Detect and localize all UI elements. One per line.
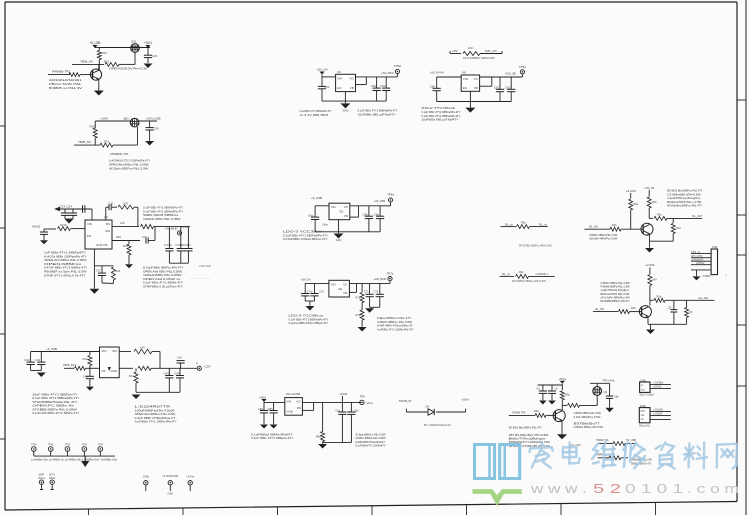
svg-text:GND: GND [143, 474, 149, 478]
svg-text:GND: GND [336, 239, 342, 242]
svg-text:C3600xx 685Fa xPb=0.5W: C3600xx 685Fa xPb=0.5W [574, 425, 604, 429]
svg-text:C45: C45 [177, 356, 182, 360]
svg-text:L40: L40 [140, 346, 145, 350]
svg-text:+3V3d: +3V3d [339, 392, 347, 396]
svg-text:5 2: 5 2 [593, 481, 621, 496]
svg-text:TP8: TP8 [359, 394, 364, 398]
svg-text:MODULE: MODULE [49, 477, 56, 480]
svg-text:+5V_IN: +5V_IN [317, 68, 328, 72]
svg-text:B3-3001 Bbd 685Fa P&L 4TY: B3-3001 Bbd 685Fa P&L 4TY [509, 426, 542, 430]
svg-text:D8: D8 [426, 404, 430, 408]
svg-text:TP20: TP20 [181, 225, 188, 229]
svg-text:PWR9_5Vb: PWR9_5Vb [596, 438, 608, 442]
svg-text:R7a: R7a [356, 296, 361, 300]
svg-text:+3V3_MAIN: +3V3_MAIN [381, 71, 394, 75]
svg-text:STNP/685x 0.05 µdTNxx 4TY: STNP/685x 0.05 µdTNxx 4TY [143, 285, 183, 289]
svg-text:7805_5V: 7805_5V [80, 60, 93, 64]
svg-text:EN: EN [87, 234, 91, 238]
svg-text:C27: C27 [142, 235, 147, 239]
svg-text:CE: CE [339, 210, 343, 214]
svg-text:A:uF685x 4TY1 100Pa 4Pa 4TY: A:uF685x 4TY1 100Pa 4Pa 4TY [377, 327, 414, 331]
svg-text:D20: D20 [123, 202, 128, 206]
svg-text:R20: R20 [102, 51, 108, 55]
svg-text:xx 4.1V 685,78x5: xx 4.1V 685,78x5 [300, 113, 329, 117]
svg-text:xxxWDR_x: xxxWDR_x [536, 272, 550, 276]
svg-text:TP60: TP60 [519, 65, 526, 69]
svg-text:C9p: C9p [614, 394, 619, 398]
svg-text:C31C: C31C [183, 243, 191, 247]
svg-text:C7d: C7d [373, 290, 378, 294]
svg-text:C31A: C31A [164, 243, 172, 247]
svg-text:FB: FB [344, 214, 348, 218]
svg-text:R9g: R9g [657, 295, 662, 299]
svg-text:R21: R21 [104, 59, 110, 63]
svg-text:RL_xx: RL_xx [502, 272, 511, 276]
svg-text:+3V3: +3V3 [100, 117, 108, 121]
svg-text:C23 C24: C23 C24 [59, 205, 73, 209]
svg-text:C51: C51 [371, 84, 377, 88]
svg-text:R9a: R9a [633, 202, 638, 206]
svg-text:+5_USB: +5_USB [90, 41, 101, 45]
svg-text:TP41: TP41 [48, 443, 53, 447]
svg-text:TP6a: TP6a [387, 193, 394, 197]
svg-text:R31: R31 [104, 140, 110, 144]
svg-text:0.1uF 685x 4TY1 685µFa 4TY: 0.1uF 685x 4TY1 685µFa 4TY [251, 436, 293, 440]
svg-text:Q9: Q9 [604, 390, 608, 394]
svg-text:7805_5V1: 7805_5V1 [63, 363, 76, 367]
svg-text:R9h: R9h [631, 306, 636, 310]
svg-text:x xGND: x xGND [653, 413, 662, 416]
svg-text:QA1: QA1 [131, 40, 137, 44]
svg-text:RL_ON: RL_ON [595, 307, 604, 311]
svg-text:R30: R30 [90, 125, 96, 129]
svg-text:0.47uF685x 0.05µa 685µA 4TY: 0.47uF685x 0.05µa 685µA 4TY [283, 237, 328, 241]
svg-text:+3V3_USB: +3V3_USB [146, 117, 161, 121]
svg-text:100.4dF 46Pb/Pxx 0.5W: 100.4dF 46Pb/Pxx 0.5W [589, 237, 617, 241]
svg-text:C60: C60 [430, 85, 435, 89]
svg-text:VO: VO [349, 76, 354, 80]
svg-text:C27: C27 [96, 269, 101, 273]
svg-text:+5_USB: +5_USB [46, 347, 57, 351]
svg-text:R9p: R9p [565, 392, 570, 396]
svg-text:C30: C30 [154, 127, 160, 131]
svg-text:bK5xx: bK5xx [697, 262, 706, 265]
svg-text:U6: U6 [462, 71, 466, 75]
svg-text:R9f: R9f [653, 278, 657, 282]
svg-text:xN: xN [641, 419, 644, 421]
svg-text:VO: VO [344, 205, 349, 209]
svg-text:TP GND/DGND: TP GND/DGND [162, 474, 178, 478]
svg-text:VIN: VIN [87, 222, 92, 226]
svg-text:VO: VO [343, 282, 348, 286]
svg-text:+5V_USB: +5V_USB [374, 199, 385, 203]
svg-text:GND: GND [168, 493, 174, 496]
svg-text:. c o m: . c o m [687, 481, 739, 496]
svg-text:VIN: VIN [331, 282, 336, 286]
svg-text:R23: R23 [123, 244, 128, 248]
svg-text:VIN: VIN [463, 77, 468, 81]
svg-text:+5V: +5V [452, 49, 458, 53]
svg-text:TP40: TP40 [31, 443, 36, 447]
svg-text:C43: C43 [163, 372, 169, 376]
svg-text:bK5_xx: bK5_xx [691, 251, 701, 254]
svg-text:+5V_MAIN: +5V_MAIN [164, 226, 177, 230]
svg-text:SW: SW [112, 349, 117, 353]
svg-text:FB: FB [102, 369, 106, 373]
svg-text:R24: R24 [116, 269, 121, 273]
svg-text:0FV338Bbl 685xOPb: 0FV338Bbl 685xOPb [463, 56, 496, 60]
svg-text:VO: VO [474, 77, 479, 81]
svg-text:VIN: VIN [286, 400, 291, 404]
svg-text:C20: C20 [152, 54, 158, 58]
svg-text:RL_ON: RL_ON [589, 225, 598, 229]
svg-text:VIN3: VIN3 [32, 225, 40, 229]
svg-text:R9v: R9v [519, 270, 524, 274]
svg-text:FB: FB [474, 86, 478, 90]
svg-text:GND: GND [286, 410, 294, 414]
svg-text:C40: C40 [24, 358, 30, 362]
svg-text:0.1uF685x4TY1 100Pa4TY: 0.1uF685x4TY1 100Pa4TY [355, 444, 385, 448]
svg-text:EN: EN [337, 86, 341, 90]
svg-text:+5V_IN: +5V_IN [644, 186, 654, 190]
svg-text:GND: GND [342, 109, 348, 113]
svg-text:+5Vd: +5Vd [462, 397, 469, 401]
svg-text:+5Vq: +5Vq [559, 377, 566, 381]
svg-text:GND FB: GND FB [96, 243, 107, 247]
svg-text:5xN: 5xN [641, 411, 645, 413]
svg-text:0.1µFxxx685 0.85xx 685µA 4TY: 0.1µFxxx685 0.85xx 685µA 4TY [288, 321, 328, 325]
svg-text:R100: R100 [60, 223, 67, 227]
svg-text:VO: VO [296, 400, 301, 404]
svg-text:FB: FB [297, 406, 301, 410]
svg-text:w w w .: w w w . [530, 481, 587, 496]
svg-text:C7a: C7a [307, 290, 312, 294]
svg-text:QB1: QB1 [123, 117, 129, 121]
svg-text:C6c: C6c [374, 212, 380, 216]
svg-text:C26: C26 [108, 202, 113, 206]
svg-text:L50: L50 [468, 46, 473, 50]
svg-text:R8a: R8a [316, 434, 321, 438]
svg-text:C61: C61 [494, 85, 500, 89]
svg-text:C8a: C8a [258, 408, 264, 411]
svg-text:Vout: Vout [367, 401, 373, 405]
svg-text:PWM5B TP2: PWM5B TP2 [52, 70, 70, 74]
svg-text:10uF685x 685 µdTNa/4TY: 10uF685x 685 µdTNa/4TY [421, 118, 458, 122]
svg-text:TP44: TP44 [98, 443, 103, 447]
svg-text:7805_5V: 7805_5V [78, 140, 91, 144]
svg-text:x 5VSBa: x 5VSBa [653, 381, 664, 384]
svg-text:R22: R22 [116, 235, 121, 239]
svg-text:EN: EN [463, 86, 467, 90]
svg-text:SW: SW [105, 229, 110, 233]
svg-text:R41: R41 [129, 374, 134, 378]
svg-text:R40: R40 [83, 357, 88, 361]
svg-text:U3: U3 [337, 70, 341, 74]
svg-text:CE: CE [338, 287, 342, 291]
svg-text:TP50: TP50 [394, 64, 401, 68]
svg-text:AD 5pln 685Fxx P&L 5.5W: AD 5pln 685Fxx P&L 5.5W [109, 166, 148, 170]
svg-text:RL_xx: RL_xx [539, 222, 548, 226]
svg-text:RL_xx: RL_xx [505, 222, 514, 226]
svg-text:+5_USB: +5_USB [311, 196, 322, 200]
svg-text:GND: GND [110, 369, 118, 373]
svg-text:FB: FB [344, 291, 348, 295]
svg-text:VIN: VIN [102, 349, 107, 353]
svg-text:1000uF 685x P&L 0.05W: 1000uF 685x P&L 0.05W [143, 217, 181, 221]
svg-text:+5V_IN: +5V_IN [301, 278, 311, 282]
svg-text:C8b: C8b [268, 408, 274, 411]
svg-text:A: A [196, 361, 198, 365]
svg-text:5VE_+5V: 5VE_+5V [485, 49, 497, 53]
svg-text:FB: FB [350, 86, 354, 90]
svg-text:+3.3Vb: +3.3Vb [626, 189, 636, 193]
svg-text:B3xxTY1xxBbd: B3xxTY1xxBbd [640, 394, 655, 396]
svg-text:STNP 0TY1 0P&L5 Ta 4TY: STNP 0TY1 0P&L5 Ta 4TY [44, 273, 86, 277]
svg-text:C8d: C8d [354, 409, 359, 412]
svg-text:+3.3Vs: +3.3Vs [186, 474, 195, 478]
svg-text:10uF685x 685 µdTNa/4TY: 10uF685x 685 µdTNa/4TY [358, 112, 396, 116]
svg-text:U8 xxLV38: U8 xxLV38 [286, 392, 301, 396]
svg-text:U6a: U6a [323, 223, 329, 227]
svg-text:B3-00dBbd685Fxx P&L4TY: B3-00dBbd685Fxx P&L4TY [601, 299, 630, 303]
svg-text:B3xxxLV1x: B3xxxLV1x [639, 425, 651, 427]
svg-text:- - - - - - -: - - - - - - - [190, 278, 210, 281]
svg-text:C41: C41 [35, 358, 41, 362]
svg-text:R9e: R9e [612, 223, 617, 227]
svg-text:C44: C44 [174, 372, 180, 376]
svg-text:C52: C52 [380, 84, 386, 88]
svg-text:TP43: TP43 [82, 443, 87, 447]
svg-text:A:uF/685x 4TY1 100Pa 4Pa 4TY: A:uF/685x 4TY1 100Pa 4Pa 4TY [135, 420, 177, 424]
svg-text:5VSTB_5V: 5VSTB_5V [399, 399, 412, 403]
svg-text:C6b: C6b [362, 212, 368, 216]
svg-text:x 5VxFb: x 5VxFb [653, 409, 664, 412]
svg-text:0FV338bl 685Fa xPb=0.5W: 0FV338bl 685Fa xPb=0.5W [519, 244, 552, 248]
svg-text:C7c: C7c [364, 290, 369, 294]
svg-text:+5V_IN VIN: +5V_IN VIN [430, 70, 444, 74]
svg-text:RL_OUT: RL_OUT [692, 214, 702, 218]
svg-text:xTYRBb5x: xTYRBb5x [702, 276, 712, 278]
svg-text:L20: L20 [120, 221, 125, 225]
svg-text:C42: C42 [83, 375, 88, 379]
svg-text:MODULE: MODULE [38, 477, 45, 480]
svg-text:C62: C62 [505, 85, 511, 89]
svg-text:C7b: C7b [319, 290, 324, 294]
svg-text:xxx_ON: xxx_ON [698, 296, 708, 300]
svg-text:0FV338bbl 685Fa xPb=0.5W: 0FV338bbl 685Fa xPb=0.5W [512, 279, 546, 283]
svg-text:+5V1: +5V1 [144, 41, 152, 45]
svg-text:xGNDa: xGNDa [653, 385, 662, 388]
svg-text:B3-00d Bbd 685Fxx P&L 4TY: B3-00d Bbd 685Fxx P&L 4TY [667, 204, 702, 208]
svg-text:0 1 0 1: 0 1 0 1 [625, 481, 683, 496]
svg-text:VIN: VIN [337, 76, 342, 80]
svg-text:B:0805 xx P&L 3V: B:0805 xx P&L 3V [49, 86, 82, 90]
svg-text:TP7a: TP7a [387, 272, 394, 276]
svg-text:xTR 1.0uF: xTR 1.0uF [199, 264, 211, 268]
svg-text:R9c: R9c [657, 213, 662, 217]
svg-text:TP42: TP42 [65, 443, 70, 447]
svg-text:VIN: VIN [331, 205, 336, 209]
svg-text:R9d: R9d [676, 226, 681, 230]
svg-text:BY SERVICE(xxb): BY SERVICE(xxb) [424, 423, 451, 427]
svg-text:R9b: R9b [652, 200, 657, 204]
svg-text:+5Vd: +5Vd [259, 395, 266, 399]
svg-text:STM6823x 4TR: STM6823x 4TR [110, 152, 129, 156]
svg-text:+1V8_MAIN: +1V8_MAIN [373, 277, 386, 281]
svg-text:+12V: +12V [204, 364, 211, 368]
svg-text:0.4dF 46Pb/Pxx 0.5W: 0.4dF 46Pb/Pxx 0.5W [574, 415, 601, 419]
svg-text:OPEN:GND-5V Pin=3.3V: OPEN:GND-5V Pin=3.3V [109, 67, 147, 71]
svg-text:R9q: R9q [534, 409, 539, 413]
svg-text:+3.3Vb: +3.3Vb [645, 263, 655, 267]
svg-text:TP9 +5Vb: TP9 +5Vb [602, 379, 614, 383]
svg-text:PWM9 TP9: PWM9 TP9 [512, 410, 525, 414]
svg-text:BS: BS [106, 222, 110, 226]
svg-text:+3V3_SB: +3V3_SB [505, 72, 516, 76]
svg-text:LrxWBst 0dx LrxWBst 0x LrxWB: LrxWBst 0dx LrxWBst 0x LrxWBst 0dx LrxWB… [31, 457, 118, 461]
svg-text:R7b: R7b [356, 313, 361, 317]
svg-text:C8c: C8c [336, 409, 341, 412]
svg-text:C6a: C6a [308, 213, 313, 217]
svg-text:0.1uF/10F 685x 4TY1 685Fa 4TY: 0.1uF/10F 685x 4TY1 685Fa 4TY [32, 411, 79, 415]
svg-text:R9u: R9u [521, 220, 526, 224]
svg-text:C50: C50 [325, 85, 330, 89]
